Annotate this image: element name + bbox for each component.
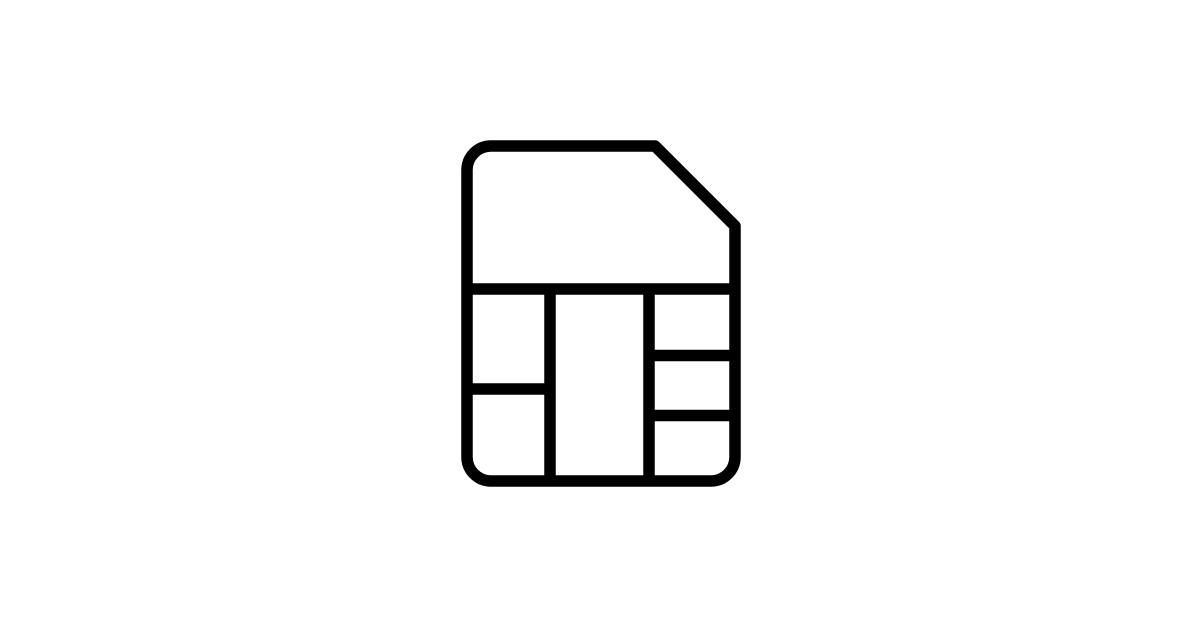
sim-card-icon — [0, 0, 1200, 628]
canvas — [0, 0, 1200, 628]
background — [0, 0, 1200, 628]
